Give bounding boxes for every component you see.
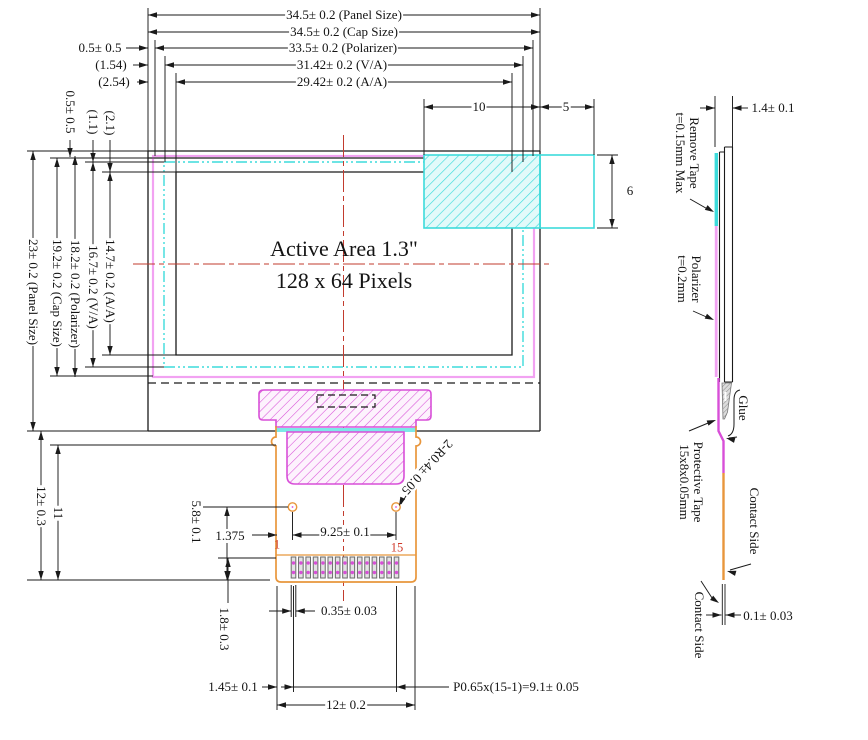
remove-tape-tab [540,155,594,228]
label-protective-tape: Protective Tape 15x8x0.05mm [677,441,705,524]
side-remove-tape-strip [715,153,718,226]
side-glue-gap [724,392,726,401]
dim-tape-tab: 5 [562,100,571,114]
dim-cap-top-offset: 0.5± 0.5 [63,90,77,135]
active-area-title: Active Area 1.3" [269,237,419,261]
mechanical-drawing-page: 34.5± 0.2 (Panel Size) 34.5± 0.2 (Cap Si… [0,0,868,740]
dim-polarizer-height: 18.2± 0.2 (Polarizer) [68,239,82,349]
active-area-resolution: 128 x 64 Pixels [275,269,413,293]
dim-fpc-total-length: 12± 0.3 [34,485,48,527]
dim-hole-offset-x: 1.375 [214,529,245,543]
side-view-glass [720,147,733,382]
dim-va-height: 16.7± 0.2 (V/A) [86,244,100,330]
dim-pin-width: 0.35± 0.03 [320,604,378,618]
dim-va-width: 31.42± 0.2 (V/A) [296,58,388,72]
drawing-canvas [0,0,868,740]
pin-number-last: 15 [390,541,405,555]
dim-va-top-offset: (1.1) [86,109,100,136]
dim-aa-height: 14.7± 0.2 (A/A) [103,238,117,324]
dim-cap-width: 34.5± 0.2 (Cap Size) [289,25,399,39]
dim-fpc-exposed-length: 11 [51,506,65,521]
dim-pin-length: 1.8± 0.3 [217,607,231,652]
dim-va-left-offset: (1.54) [94,58,127,72]
label-polarizer-line1: Polarizer [689,256,704,303]
dim-hole-pitch: 9.25± 0.1 [319,525,370,539]
label-protective-tape-line1: Protective Tape [691,442,706,523]
label-polarizer: Polarizer t=0.2mm [675,254,703,303]
label-contact-side-left: Contact Side [692,591,706,660]
label-protective-tape-line2: 15x8x0.05mm [677,444,692,519]
pin-number-first: 1 [273,538,281,552]
side-glue-wedge [722,383,732,419]
dim-pin-pitch: P0.65x(15-1)=9.1± 0.05 [452,680,580,694]
dim-contact-thickness: 0.1± 0.03 [742,609,793,623]
label-remove-tape-line1: Remove Tape [687,117,702,188]
dimension-lines [27,8,751,710]
dim-fpc-width: 12± 0.2 [325,698,367,712]
dim-aa-width: 29.42± 0.2 (A/A) [296,75,388,89]
fpc-pins [291,557,399,578]
dim-aa-top-offset: (2.1) [103,110,117,137]
dim-polarizer-left-offset: 0.5± 0.5 [78,41,123,55]
label-contact-side-right: Contact Side [747,487,761,556]
dim-hole-offset-y: 5.8± 0.1 [189,500,203,545]
dim-tape-height: 6 [626,184,635,198]
remove-tape-hatched [424,155,540,228]
dim-module-thickness: 1.4± 0.1 [751,101,796,115]
label-polarizer-line2: t=0.2mm [675,255,690,302]
dim-cap-height: 19.2± 0.2 (Cap Size) [50,238,64,348]
side-contact-end [722,584,725,625]
dim-aa-left-offset: (2.54) [97,75,130,89]
dim-panel-height: 23± 0.2 (Panel Size) [26,238,40,346]
side-polarizer-strip [715,226,718,377]
label-glue: Glue [736,394,750,421]
label-remove-tape: Remove Tape t=0.15mm Max [673,112,701,195]
alignment-holes [288,503,400,511]
dim-tape-width: 10 [472,100,487,114]
dim-pin-margin: 1.45± 0.1 [207,680,258,694]
fpc-lower-tape [287,432,404,484]
dim-panel-width: 34.5± 0.2 (Panel Size) [285,8,403,22]
label-remove-tape-line2: t=0.15mm Max [673,113,688,194]
dim-polarizer-width: 33.5± 0.2 (Polarizer) [288,41,398,55]
